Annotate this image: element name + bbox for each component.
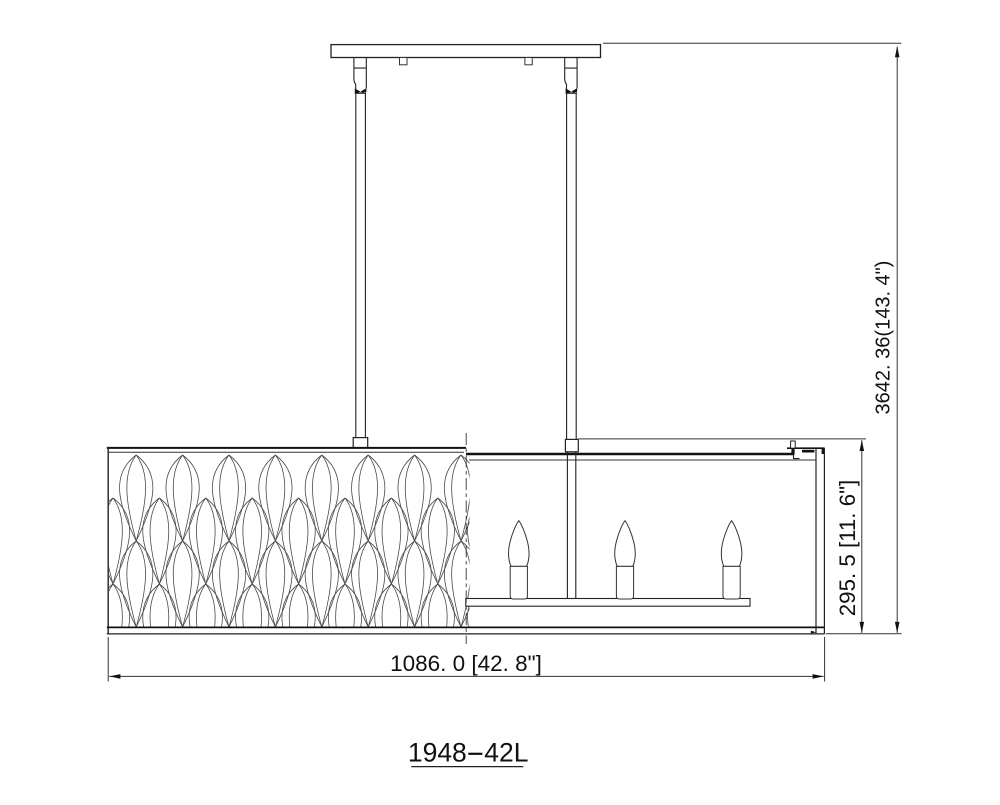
svg-text:1086. 0 [42. 8"]: 1086. 0 [42. 8"] xyxy=(390,651,542,676)
svg-text:42L: 42L xyxy=(484,738,528,768)
svg-text:3642. 36(143. 4"): 3642. 36(143. 4") xyxy=(873,261,895,415)
svg-text:1948: 1948 xyxy=(408,738,467,768)
svg-text:295. 5 [11. 6"]: 295. 5 [11. 6"] xyxy=(835,480,860,616)
